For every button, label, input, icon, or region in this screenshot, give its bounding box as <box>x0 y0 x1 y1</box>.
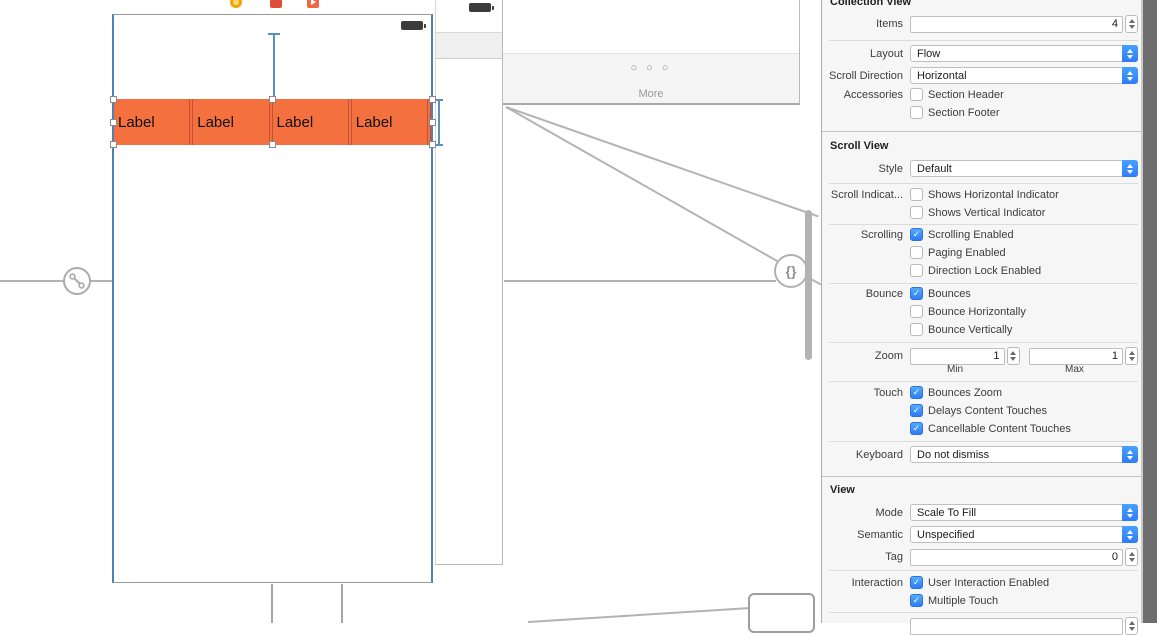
scroll-direction-label: Scroll Direction <box>822 70 910 82</box>
segue-braces-icon[interactable]: {} <box>774 254 808 288</box>
selection-handle[interactable] <box>429 119 436 126</box>
semantic-value: Unspecified <box>917 529 974 541</box>
touch-row: Touch Bounces Zoom <box>822 386 1138 399</box>
more-scene[interactable]: ○ ○ ○ More <box>503 0 800 105</box>
view-controller-icon[interactable] <box>230 0 242 8</box>
segue-line-horizontal <box>504 280 776 282</box>
layout-row: Layout Flow <box>822 45 1138 62</box>
section-footer-row: Section Footer <box>910 106 1000 119</box>
zoom-row: Zoom 1 1 <box>822 347 1138 365</box>
selection-handle[interactable] <box>269 141 276 148</box>
direction-lock-row: Direction Lock Enabled <box>910 264 1041 277</box>
zoom-max-caption: Max <box>1065 364 1084 375</box>
cell-label: Label <box>193 114 234 131</box>
semantic-dropdown[interactable]: Unspecified <box>910 526 1138 543</box>
dropdown-arrows-icon <box>1122 160 1138 177</box>
direction-lock-checkbox[interactable] <box>910 264 923 277</box>
cancellable-content-touches-label: Cancellable Content Touches <box>928 423 1071 435</box>
cell-label: Label <box>273 114 314 131</box>
scrolling-enabled-checkbox[interactable] <box>910 228 923 241</box>
section-title-view: View <box>830 484 855 496</box>
constraint-indicator[interactable] <box>273 33 275 99</box>
dropdown-arrows-icon <box>1122 526 1138 543</box>
selection-handle[interactable] <box>269 96 276 103</box>
status-bar-battery-icon <box>469 3 491 12</box>
separator <box>829 441 1138 442</box>
delays-content-touches-row: Delays Content Touches <box>910 404 1047 417</box>
bounce-vertically-label: Bounce Vertically <box>928 324 1012 336</box>
keyboard-dropdown[interactable]: Do not dismiss <box>910 446 1138 463</box>
layout-value: Flow <box>917 48 940 60</box>
selection-handle[interactable] <box>110 141 117 148</box>
separator <box>829 381 1138 382</box>
separator <box>829 183 1138 184</box>
mode-row: Mode Scale To Fill <box>822 504 1138 521</box>
scrolling-enabled-label: Scrolling Enabled <box>928 229 1014 241</box>
items-field[interactable]: 4 <box>910 16 1123 33</box>
multiple-touch-row: Multiple Touch <box>910 594 998 607</box>
delays-content-touches-checkbox[interactable] <box>910 404 923 417</box>
paging-enabled-label: Paging Enabled <box>928 247 1006 259</box>
mode-label: Mode <box>822 507 910 519</box>
collection-cell[interactable]: Label <box>193 99 272 145</box>
items-stepper[interactable] <box>1125 15 1138 33</box>
selection-handle[interactable] <box>110 96 117 103</box>
segue-line-diagonal-2 <box>506 106 778 262</box>
separator <box>829 283 1138 284</box>
user-interaction-checkbox[interactable] <box>910 576 923 589</box>
selection-handle[interactable] <box>110 119 117 126</box>
collection-cell[interactable]: Label <box>273 99 352 145</box>
zoom-max-field[interactable]: 1 <box>1029 348 1124 365</box>
accessories-label: Accessories <box>822 89 910 101</box>
tag-row: Tag 0 <box>822 548 1138 566</box>
semantic-row: Semantic Unspecified <box>822 526 1138 543</box>
dropdown-arrows-icon <box>1122 504 1138 521</box>
direction-lock-label: Direction Lock Enabled <box>928 265 1041 277</box>
scroll-indicators-label: Scroll Indicat... <box>822 189 910 201</box>
shows-vertical-indicator-label: Shows Vertical Indicator <box>928 207 1045 219</box>
zoom-min-caption: Min <box>947 364 963 375</box>
items-label: Items <box>822 18 910 30</box>
accessories-row: Accessories Section Header <box>822 88 1138 101</box>
semantic-label: Semantic <box>822 529 910 541</box>
bounce-label: Bounce <box>822 288 910 300</box>
paging-enabled-checkbox[interactable] <box>910 246 923 259</box>
zoom-label: Zoom <box>822 350 910 362</box>
shows-horizontal-indicator-label: Shows Horizontal Indicator <box>928 189 1059 201</box>
section-header-label: Section Header <box>928 89 1004 101</box>
interaction-row: Interaction User Interaction Enabled <box>822 576 1138 589</box>
connection-line-vertical-2 <box>341 584 343 623</box>
bounce-row: Bounce Bounces <box>822 287 1138 300</box>
bounces-zoom-checkbox[interactable] <box>910 386 923 399</box>
separator <box>829 612 1138 613</box>
shows-horizontal-indicator-checkbox[interactable] <box>910 188 923 201</box>
layout-dropdown[interactable]: Flow <box>910 45 1138 62</box>
layout-label: Layout <box>822 48 910 60</box>
window-edge <box>1141 0 1157 623</box>
cell-label: Label <box>114 114 155 131</box>
shows-vertical-indicator-row: Shows Vertical Indicator <box>910 206 1045 219</box>
zoom-min-stepper[interactable] <box>1007 347 1020 365</box>
shows-vertical-indicator-checkbox[interactable] <box>910 206 923 219</box>
section-header-checkbox[interactable] <box>910 88 923 101</box>
selection-handle[interactable] <box>429 141 436 148</box>
style-value: Default <box>917 163 952 175</box>
bounce-vertically-row: Bounce Vertically <box>910 323 1012 336</box>
collection-cell[interactable]: Label <box>114 99 193 145</box>
attributes-inspector: Collection View Items 4 Layout Flow Scro… <box>821 0 1141 623</box>
more-tab-bar[interactable]: ○ ○ ○ More <box>503 53 799 103</box>
bounce-horizontally-row: Bounce Horizontally <box>910 305 1026 318</box>
multiple-touch-checkbox[interactable] <box>910 594 923 607</box>
mode-dropdown[interactable]: Scale To Fill <box>910 504 1138 521</box>
user-interaction-label: User Interaction Enabled <box>928 577 1049 589</box>
relationship-segue-icon[interactable] <box>63 267 91 295</box>
partial-scene-bottom-right[interactable] <box>748 593 815 633</box>
scroll-direction-dropdown[interactable]: Horizontal <box>910 67 1138 84</box>
partial-scene-bar <box>436 32 502 59</box>
section-border <box>822 131 1141 132</box>
dropdown-arrows-icon <box>1122 45 1138 62</box>
tag-stepper[interactable] <box>1125 548 1138 566</box>
keyboard-row: Keyboard Do not dismiss <box>822 446 1138 463</box>
canvas-vertical-scrollbar[interactable] <box>805 210 812 360</box>
exit-segue-icon[interactable] <box>307 0 319 8</box>
items-row: Items 4 <box>822 15 1138 33</box>
tag-field[interactable]: 0 <box>910 549 1123 566</box>
scroll-indicators-row: Scroll Indicat... Shows Horizontal Indic… <box>822 188 1138 201</box>
touch-label: Touch <box>822 387 910 399</box>
bounce-horizontally-checkbox[interactable] <box>910 305 923 318</box>
interaction-label: Interaction <box>822 577 910 589</box>
section-footer-checkbox[interactable] <box>910 106 923 119</box>
selection-handle[interactable] <box>429 96 436 103</box>
separator <box>829 40 1138 41</box>
separator <box>829 224 1138 225</box>
partial-bottom-stepper[interactable] <box>1125 617 1138 635</box>
delays-content-touches-label: Delays Content Touches <box>928 405 1047 417</box>
multiple-touch-label: Multiple Touch <box>928 595 998 607</box>
separator <box>829 342 1138 343</box>
scrolling-label: Scrolling <box>822 229 910 241</box>
connection-line-vertical-1 <box>271 584 273 623</box>
collection-cell[interactable]: Label <box>352 99 431 145</box>
more-tab-icon: ○ ○ ○ <box>503 62 799 74</box>
style-row: Style Default <box>822 160 1138 177</box>
section-border <box>822 476 1141 477</box>
partial-scene[interactable] <box>435 0 503 565</box>
tag-label: Tag <box>822 551 910 563</box>
keyboard-value: Do not dismiss <box>917 449 989 461</box>
scroll-direction-value: Horizontal <box>917 70 967 82</box>
segue-line-diagonal-1 <box>506 106 819 217</box>
separator <box>829 570 1138 571</box>
resize-ibeam[interactable] <box>438 100 440 146</box>
section-title-collection-view: Collection View <box>830 0 911 8</box>
status-bar-battery-icon <box>401 21 423 30</box>
segue-line-bottom <box>528 607 751 623</box>
relationship-glyph <box>68 272 86 290</box>
bounces-zoom-label: Bounces Zoom <box>928 387 1002 399</box>
section-title-scroll-view: Scroll View <box>830 140 889 152</box>
first-responder-icon[interactable] <box>270 0 282 8</box>
zoom-min-field[interactable]: 1 <box>910 348 1005 365</box>
collection-view[interactable]: Label Label Label Label <box>114 99 431 145</box>
scroll-direction-row: Scroll Direction Horizontal <box>822 67 1138 84</box>
mode-value: Scale To Fill <box>917 507 976 519</box>
bounce-horizontally-label: Bounce Horizontally <box>928 306 1026 318</box>
cancellable-content-touches-row: Cancellable Content Touches <box>910 422 1071 435</box>
scrolling-row: Scrolling Scrolling Enabled <box>822 228 1138 241</box>
bounces-checkbox[interactable] <box>910 287 923 300</box>
style-label: Style <box>822 163 910 175</box>
zoom-max-stepper[interactable] <box>1125 347 1138 365</box>
relationship-line-left <box>0 280 114 282</box>
cell-label: Label <box>352 114 393 131</box>
paging-enabled-row: Paging Enabled <box>910 246 1006 259</box>
bounces-label: Bounces <box>928 288 971 300</box>
style-dropdown[interactable]: Default <box>910 160 1138 177</box>
cancellable-content-touches-checkbox[interactable] <box>910 422 923 435</box>
section-footer-label: Section Footer <box>928 107 1000 119</box>
partial-bottom-row <box>822 617 1138 635</box>
dropdown-arrows-icon <box>1122 67 1138 84</box>
keyboard-label: Keyboard <box>822 449 910 461</box>
more-tab-label: More <box>503 88 799 100</box>
bounce-vertically-checkbox[interactable] <box>910 323 923 336</box>
dropdown-arrows-icon <box>1122 446 1138 463</box>
partial-bottom-field[interactable] <box>910 618 1123 635</box>
